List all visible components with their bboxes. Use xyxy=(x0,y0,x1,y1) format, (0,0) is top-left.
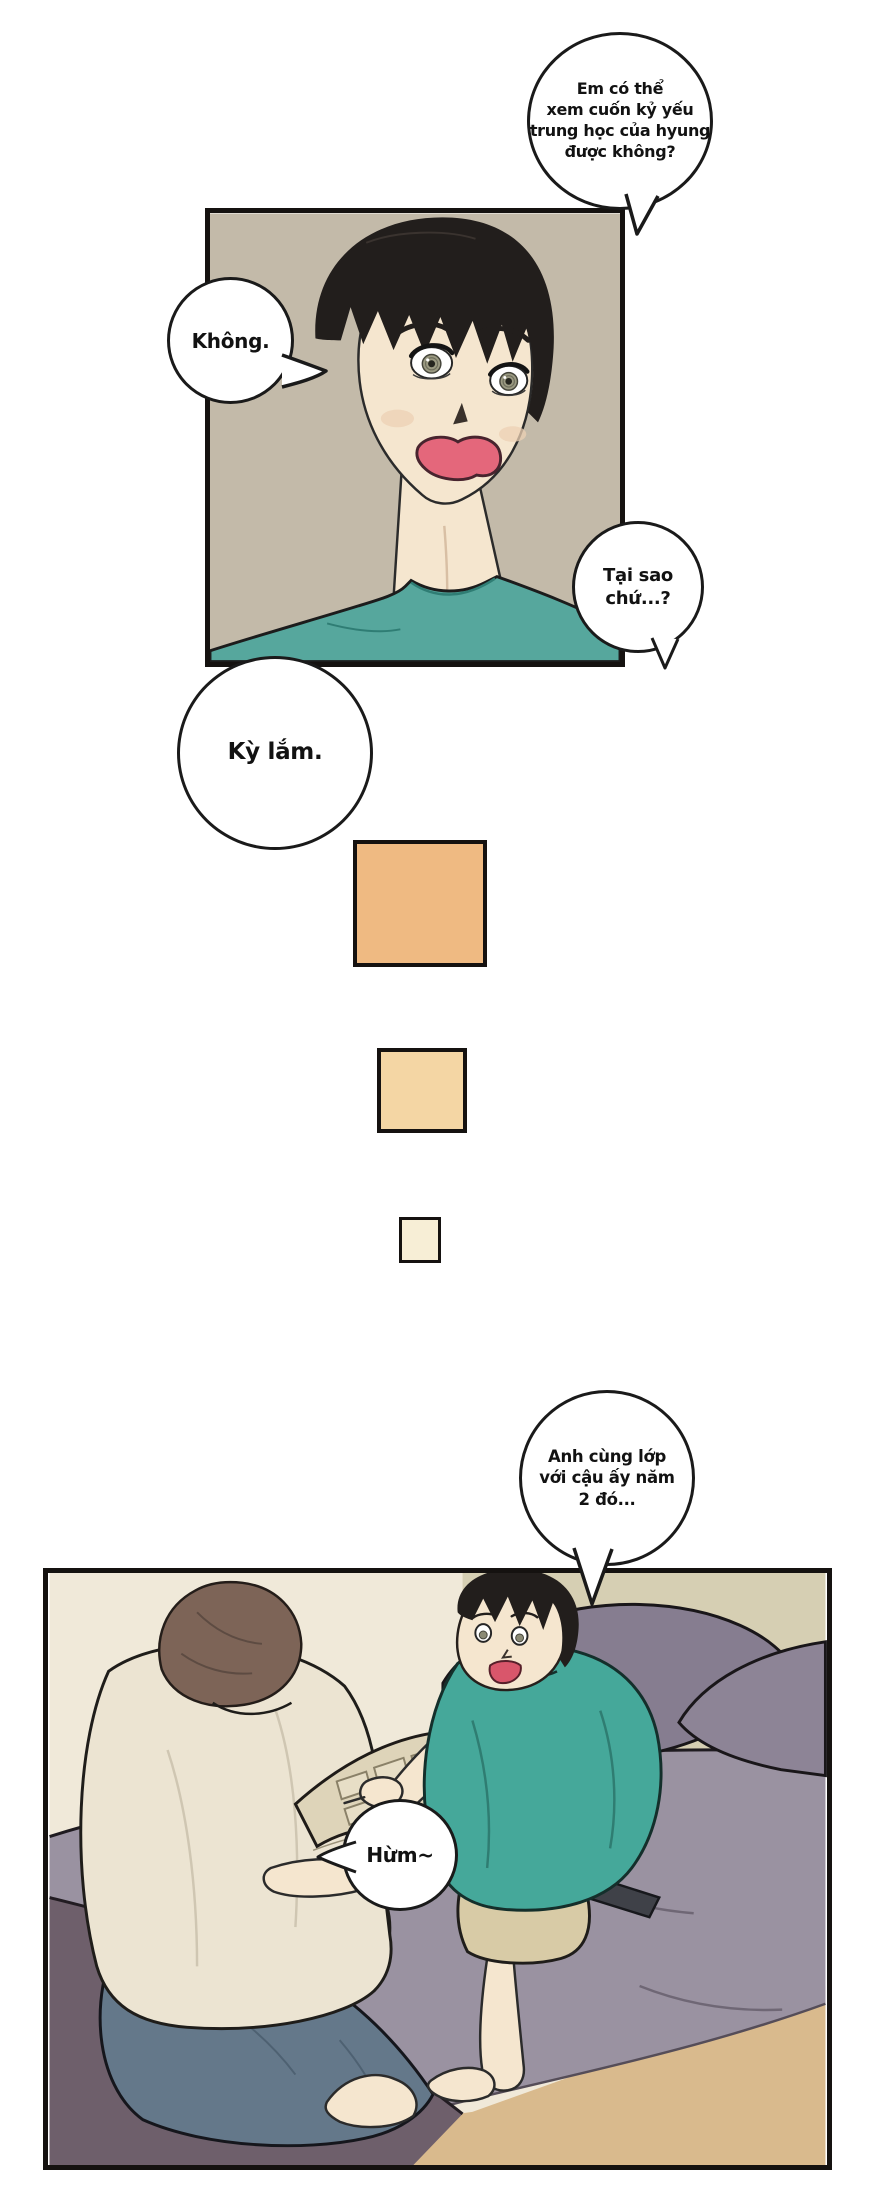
comic-page: Em có thể xem cuốn kỷ yếu trung học của … xyxy=(0,0,870,2203)
speech-bubble-3-line: chứ...? xyxy=(605,587,670,610)
blush-left xyxy=(381,410,414,428)
speech-bubble-6: Hừm~ xyxy=(342,1799,458,1911)
speech-bubble-1-line: Em có thể xyxy=(577,79,663,100)
transition-square-3 xyxy=(399,1217,441,1263)
brown-hair xyxy=(159,1582,301,1706)
speech-bubble-5-line: với cậu ấy năm xyxy=(539,1467,674,1488)
speech-bubble-3-line: Tại sao xyxy=(603,564,673,587)
speech-bubble-1-tail xyxy=(622,192,662,238)
speech-bubble-6-line: Hừm~ xyxy=(366,1842,433,1868)
transition-square-2 xyxy=(377,1048,467,1133)
speech-bubble-5-line: Anh cùng lớp xyxy=(548,1446,666,1467)
speech-bubble-2-line: Không. xyxy=(192,328,270,354)
teal-tshirt xyxy=(424,1646,661,1910)
speech-bubble-4-line: Kỳ lắm. xyxy=(228,738,323,768)
speech-bubble-3-tail xyxy=(648,636,682,672)
panel-1 xyxy=(205,208,625,667)
speech-bubble-5-line: 2 đó... xyxy=(578,1489,635,1510)
speech-bubble-5: Anh cùng lớp với cậu ấy năm 2 đó... xyxy=(519,1390,695,1566)
speech-bubble-1-line: trung học của hyung xyxy=(530,121,710,142)
panel-1-illustration xyxy=(210,213,620,662)
transition-square-1 xyxy=(353,840,487,967)
eye-right xyxy=(490,364,527,395)
speech-bubble-2-tail xyxy=(280,352,328,390)
speech-bubble-1: Em có thể xem cuốn kỷ yếu trung học của … xyxy=(527,32,713,210)
speech-bubble-1-line: được không? xyxy=(565,142,676,163)
speech-bubble-5-tail xyxy=(571,1546,615,1608)
speech-bubble-6-tail xyxy=(316,1840,358,1874)
blush-right xyxy=(499,426,526,442)
speech-bubble-4: Kỳ lắm. xyxy=(177,656,373,850)
speech-bubble-1-line: xem cuốn kỷ yếu xyxy=(546,100,693,121)
mouth xyxy=(417,437,501,480)
speech-bubble-2: Không. xyxy=(167,277,294,404)
speech-bubble-3: Tại sao chứ...? xyxy=(572,521,704,653)
